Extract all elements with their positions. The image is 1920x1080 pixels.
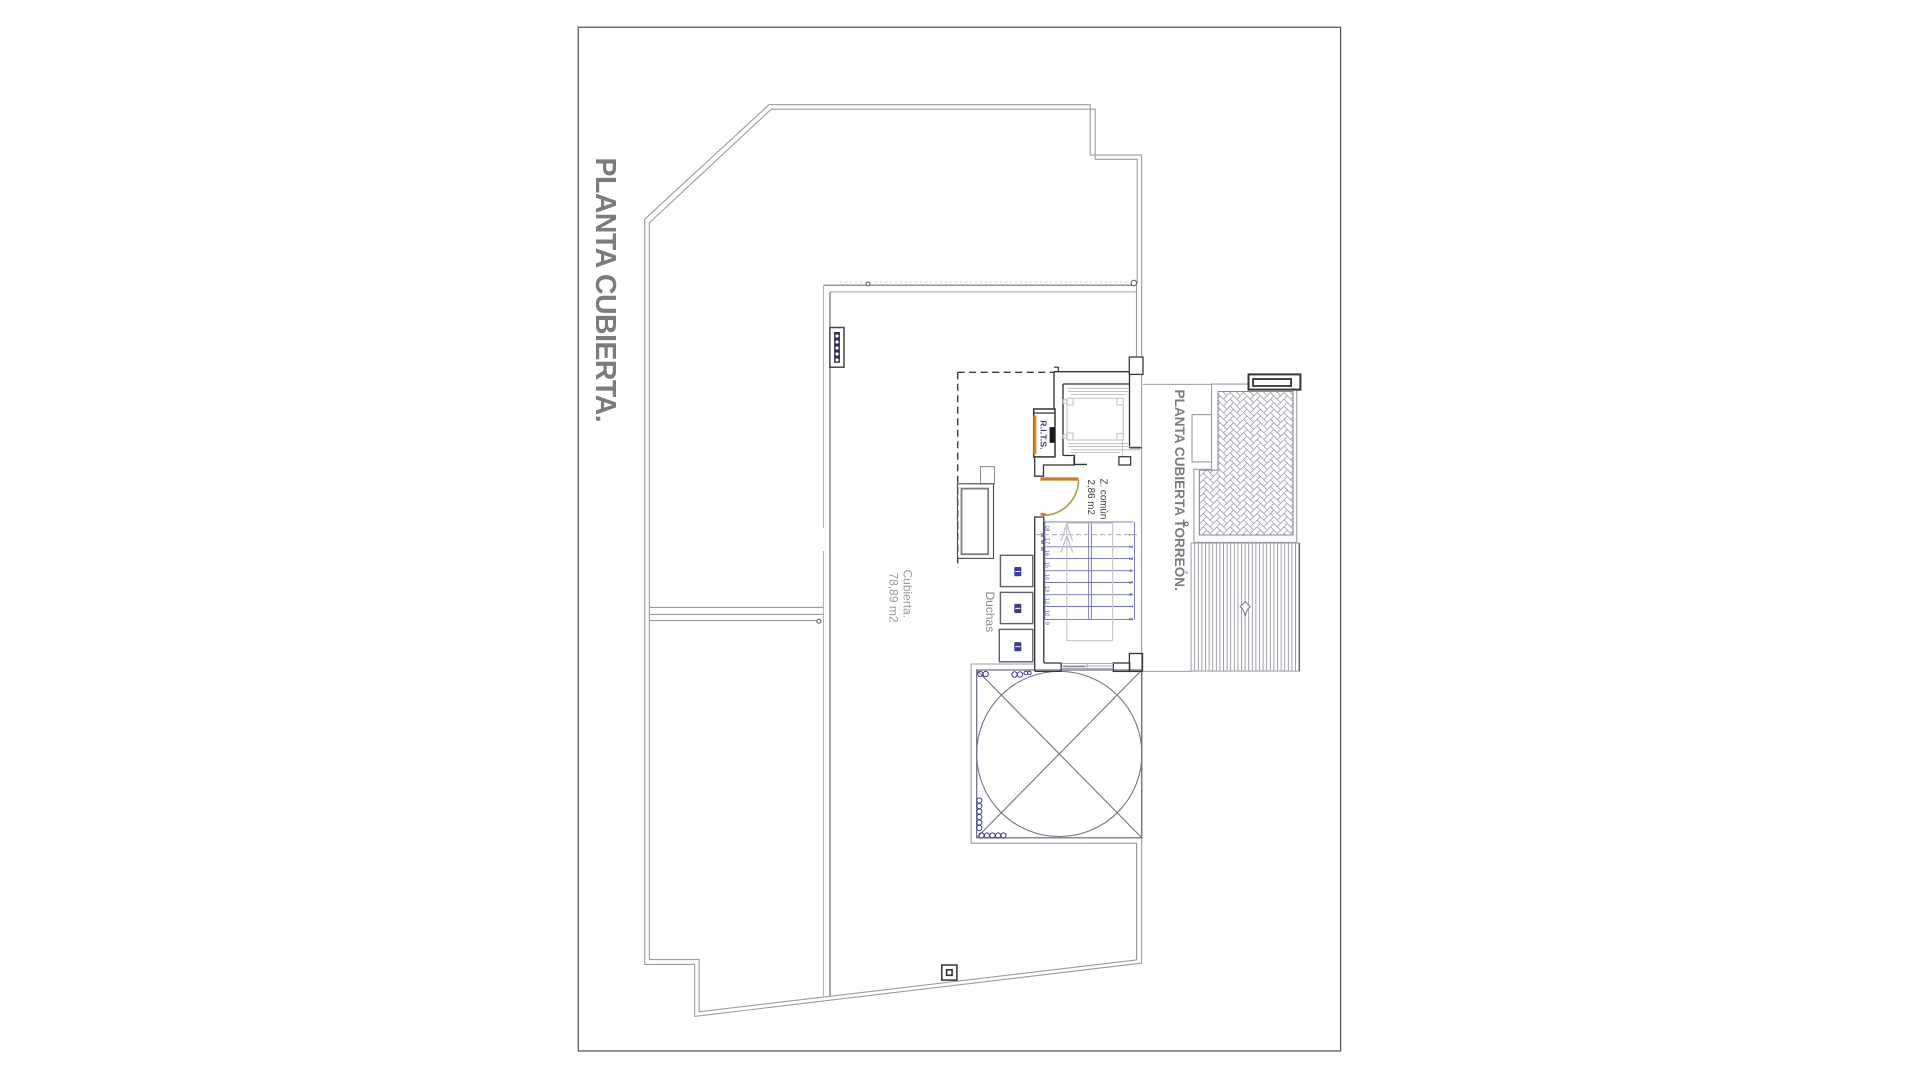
svg-text:7: 7 — [1127, 605, 1133, 608]
svg-text:8: 8 — [1127, 618, 1133, 621]
svg-text:3: 3 — [1127, 557, 1133, 560]
svg-text:16: 16 — [1044, 550, 1050, 556]
svg-text:4: 4 — [1127, 569, 1133, 572]
svg-text:15: 15 — [1044, 562, 1050, 568]
svg-text:Z. común: Z. común — [1097, 479, 1108, 520]
svg-text:78,89 m2: 78,89 m2 — [887, 573, 901, 623]
svg-text:2: 2 — [1127, 545, 1133, 548]
svg-text:13: 13 — [1044, 586, 1050, 592]
svg-text:6: 6 — [1127, 593, 1133, 596]
svg-text:PLANTA CUBIERTA.: PLANTA CUBIERTA. — [589, 158, 621, 423]
svg-text:Cubierta.: Cubierta. — [901, 570, 915, 619]
svg-text:12: 12 — [1044, 598, 1050, 604]
svg-text:Duchas: Duchas — [983, 592, 997, 633]
svg-text:PLANTA CUBIERTA TORREÓN.: PLANTA CUBIERTA TORREÓN. — [1172, 390, 1187, 591]
svg-text:18: 18 — [1044, 525, 1050, 531]
svg-text:R.I.T.S.: R.I.T.S. — [1039, 420, 1049, 449]
svg-text:1: 1 — [1127, 533, 1133, 536]
svg-text:17: 17 — [1044, 538, 1050, 544]
svg-text:5: 5 — [1127, 581, 1133, 584]
svg-text:9: 9 — [1044, 622, 1050, 625]
svg-text:10: 10 — [1044, 610, 1050, 616]
svg-text:2,86 m2: 2,86 m2 — [1085, 480, 1096, 515]
svg-text:14: 14 — [1044, 574, 1050, 580]
